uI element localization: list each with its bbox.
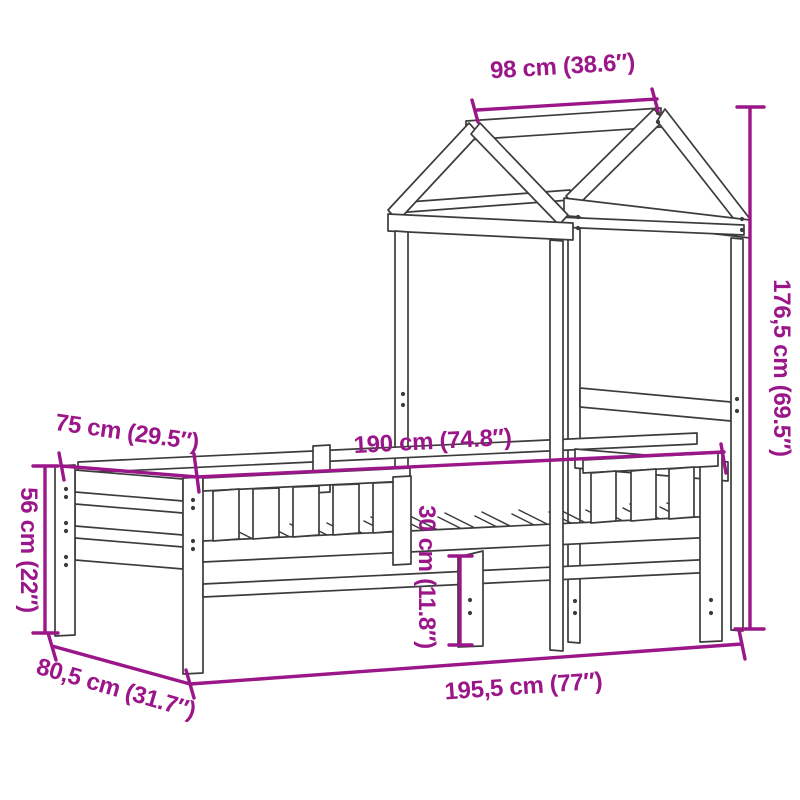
guard-spindle	[253, 488, 279, 539]
headboard-rail-bottom	[75, 538, 183, 569]
dim-label-headboard-height: 56 cm (22″)	[15, 487, 42, 613]
dim-total-width: 80,5 cm (31.7″)	[33, 633, 199, 724]
guard-rail-right-section	[583, 453, 718, 523]
dim-label-bed-inner-width: 75 cm (29.5″)	[53, 409, 200, 456]
headboard-rail-middle	[75, 504, 183, 535]
guard-spindle	[591, 471, 616, 523]
rear-near-post	[731, 238, 743, 631]
dim-label-total-length: 195,5 cm (77″)	[444, 668, 604, 706]
dim-label-roof-ridge-length: 98 cm (38.6″)	[489, 49, 635, 85]
guard-spindle	[333, 484, 359, 535]
front-near-post	[550, 240, 563, 651]
dim-label-under-bed-clearance: 30 cm (11.8″)	[413, 505, 440, 649]
front-gable-tie-beam	[388, 214, 573, 240]
guard-rail-end-post	[393, 476, 411, 565]
dim-headboard-height: 56 cm (22″)	[15, 466, 58, 633]
guard-spindle	[631, 469, 656, 521]
guard-spindle	[213, 489, 239, 541]
dim-label-total-height: 176,5 cm (69.5″)	[768, 279, 795, 456]
headboard	[55, 465, 203, 674]
dim-total-height: 176,5 cm (69.5″)	[735, 107, 795, 629]
canopy-headboard-rail	[580, 388, 731, 421]
guard-spindle	[293, 486, 319, 537]
front-gable-right-rafter	[471, 123, 568, 225]
dimension-diagram: 98 cm (38.6″) 176,5 cm (69.5″) 75 cm (29…	[0, 0, 800, 800]
guard-spindle	[669, 467, 694, 519]
